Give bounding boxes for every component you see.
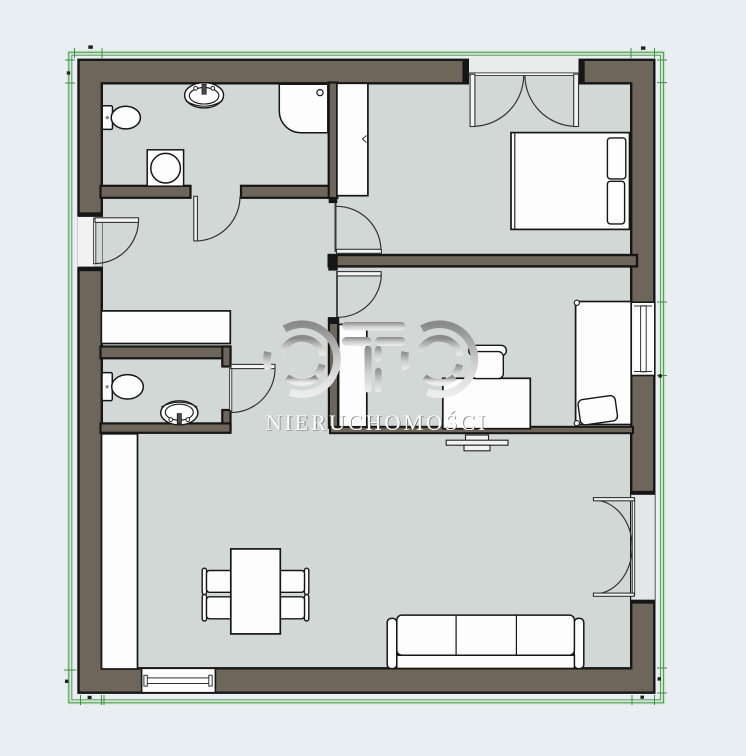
svg-text:NIERUCHOMOŚCI: NIERUCHOMOŚCI	[266, 409, 488, 435]
